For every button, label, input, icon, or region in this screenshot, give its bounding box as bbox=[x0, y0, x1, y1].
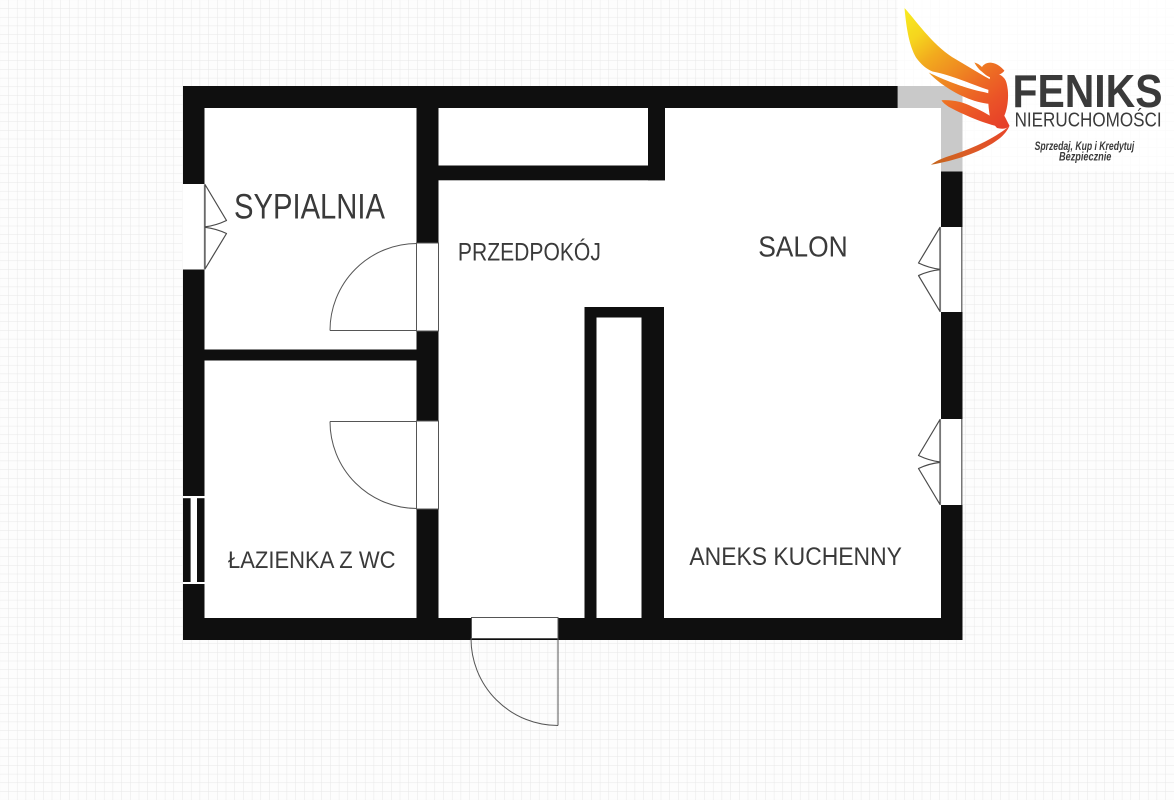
svg-text:SYPIALNIA: SYPIALNIA bbox=[234, 187, 386, 226]
svg-text:ŁAZIENKA Z WC: ŁAZIENKA Z WC bbox=[228, 547, 396, 574]
svg-text:NIERUCHOMOŚCI: NIERUCHOMOŚCI bbox=[1015, 108, 1162, 132]
svg-text:PRZEDPOKÓJ: PRZEDPOKÓJ bbox=[458, 239, 601, 266]
svg-text:Bezpiecznie: Bezpiecznie bbox=[1059, 149, 1112, 163]
svg-text:SALON: SALON bbox=[758, 232, 848, 264]
svg-text:ANEKS KUCHENNY: ANEKS KUCHENNY bbox=[689, 543, 902, 571]
